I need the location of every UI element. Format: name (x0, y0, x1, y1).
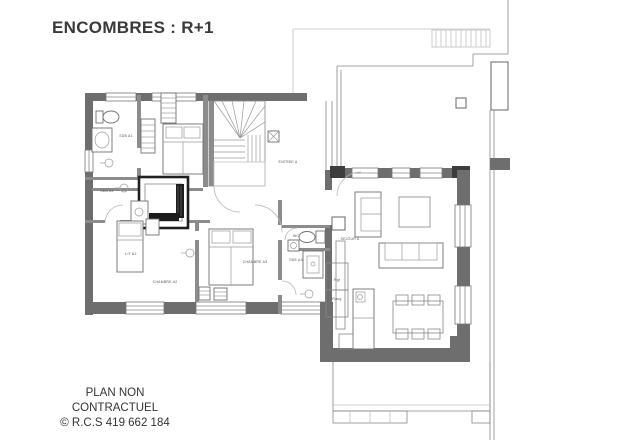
duct-column (332, 217, 345, 230)
kitchen-counter (336, 241, 353, 349)
washbasin-sdb-a1 (92, 128, 112, 152)
upper-terrace (337, 66, 510, 170)
washing-machine (288, 240, 299, 251)
staircase (209, 101, 279, 186)
floor-plan-page: ENCOMBRES : R+1 (0, 0, 640, 443)
room-label-rgt: Rgt (334, 278, 340, 282)
nightstand-chambre-a2 (146, 219, 159, 235)
radiator-icon (199, 287, 227, 300)
dining-table (393, 301, 443, 333)
toilet-wc (299, 231, 325, 243)
shower-sde-a3 (303, 251, 323, 278)
room-label-entree-a: ENTREE A (279, 160, 298, 164)
double-bed-chambre-a3 (209, 229, 253, 285)
footer-disclaimer: PLAN NON CONTRACTUEL (44, 386, 186, 416)
room-label-sde-a3: SDE A3 (289, 258, 302, 262)
armchair (355, 192, 381, 237)
room-label-rang: Rang (332, 297, 341, 301)
room-label-sejour-a: SEJOUR A (341, 237, 360, 241)
footer: PLAN NON CONTRACTUEL © R.C.S 419 662 184 (44, 386, 186, 431)
room-label-sdb-a1: SDB A1 (119, 134, 132, 138)
kitchen-unit (353, 289, 374, 349)
floor-plan-drawing: SDB A1SDB A2LIT A2CHAMBRE A2CHAMBRE A3WC… (0, 0, 640, 443)
lower-terrace (333, 362, 490, 423)
room-label-sdb-a2: SDB A2 (100, 189, 113, 193)
terrace-skylight (456, 98, 466, 108)
room-label-lit-a2: LIT A2 (125, 252, 136, 256)
stair-post (268, 131, 279, 142)
dining-chairs (396, 295, 440, 339)
footer-rcs: © R.C.S 419 662 184 (44, 416, 186, 431)
coffee-table (399, 197, 430, 227)
double-bed-suite (163, 124, 203, 174)
room-label-wc: WC (293, 234, 300, 238)
room-label-chambre-a3: CHAMBRE A3 (243, 260, 268, 264)
roof-hatch (432, 30, 490, 47)
room-label-chambre-a2: CHAMBRE A2 (153, 280, 178, 284)
single-bed-chambre-a2 (117, 221, 143, 272)
sofa (379, 243, 443, 268)
toilet-sdb-a1 (96, 111, 119, 123)
